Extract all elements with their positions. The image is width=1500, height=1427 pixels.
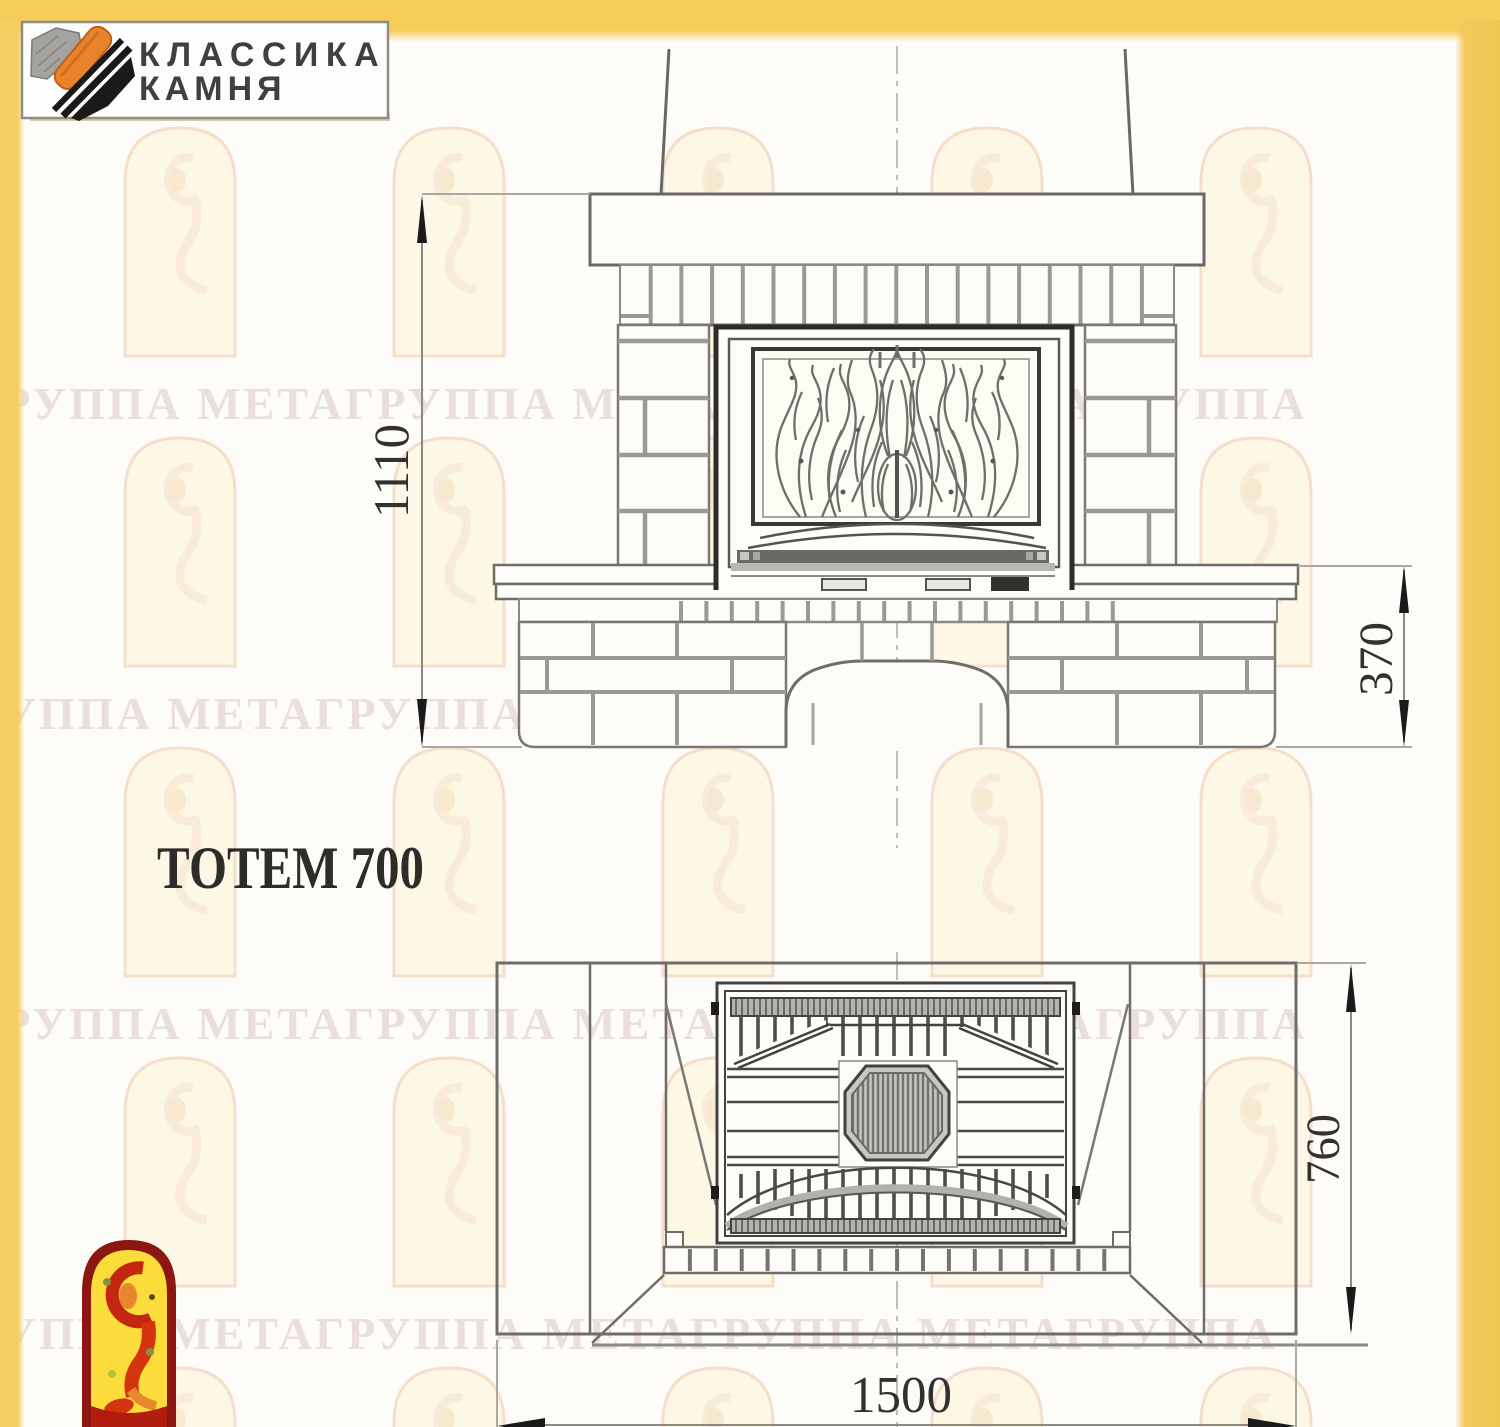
svg-text:1500: 1500 [850,1367,952,1424]
svg-text:ТОТЕМ 700: ТОТЕМ 700 [157,835,424,901]
svg-text:1110: 1110 [363,424,419,518]
svg-text:КАМНЯ: КАМНЯ [139,70,287,108]
svg-text:760: 760 [1297,1114,1350,1184]
svg-text:370: 370 [1350,622,1403,696]
svg-text:КЛАССИКА: КЛАССИКА [139,36,386,74]
svg-text:ГРУППА МЕТАГРУППА МЕТАГРУППА М: ГРУППА МЕТАГРУППА МЕТАГРУППА МЕТАГРУППА [0,998,1308,1049]
